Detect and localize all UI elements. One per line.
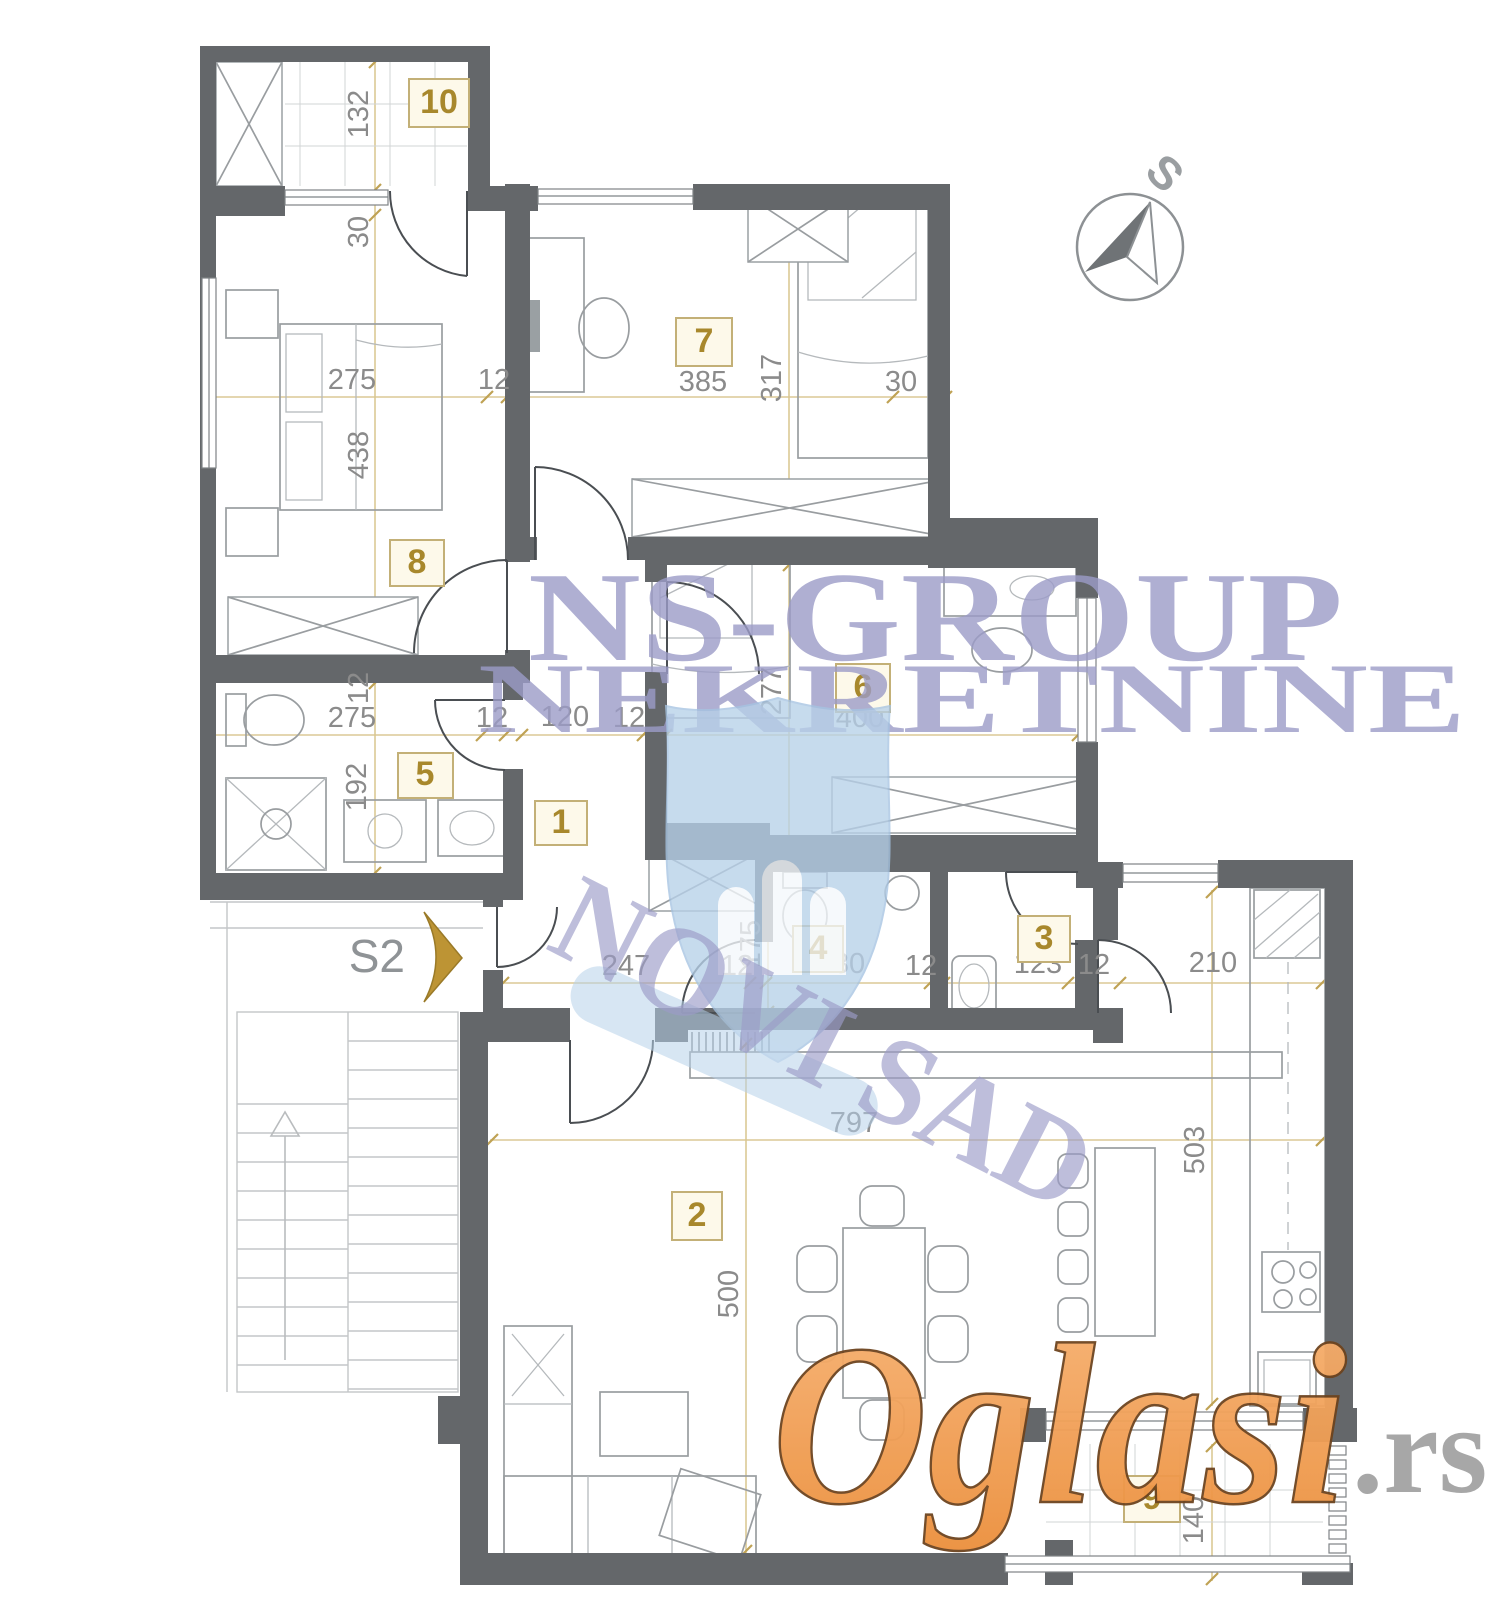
shaft-box	[216, 62, 282, 186]
wardrobe-room7	[632, 479, 947, 537]
dim-503: 503	[1179, 1126, 1211, 1174]
room-label-5: 5	[398, 753, 453, 798]
brand-oglasi: Oglasi	[772, 1297, 1347, 1552]
dim-12-g: 12	[1078, 949, 1110, 981]
window	[285, 190, 388, 205]
toilet-bowl	[244, 695, 304, 745]
stair-label-s2: S2	[349, 930, 405, 982]
room-label-1: 1	[535, 801, 587, 845]
compass-south-label: S	[1136, 144, 1194, 202]
window	[202, 278, 216, 468]
dim-12-f: 12	[905, 950, 937, 982]
sofa-back	[504, 1326, 572, 1558]
entrance-marker: S2	[349, 912, 462, 1002]
dim-275-bath: 275	[328, 702, 376, 734]
dim-275-room8: 275	[328, 364, 376, 396]
window	[538, 189, 693, 204]
dim-30-top: 30	[343, 216, 375, 248]
dim-30-room7: 30	[885, 366, 917, 398]
dim-438: 438	[343, 431, 375, 479]
dim-192: 192	[341, 763, 373, 811]
round-sink	[885, 876, 919, 910]
room-number-8: 8	[408, 543, 427, 581]
dim-12-a: 12	[478, 364, 510, 396]
compass-rose: S	[1077, 144, 1194, 300]
room-number-5: 5	[416, 755, 435, 793]
room-label-8: 8	[390, 540, 444, 586]
dim-500: 500	[713, 1270, 745, 1318]
desk-chair	[579, 298, 629, 358]
dim-317: 317	[756, 354, 788, 402]
dim-385: 385	[679, 366, 727, 398]
furniture-room8-bedroom	[226, 290, 442, 556]
sink	[438, 800, 506, 856]
nightstand	[226, 508, 278, 556]
dim-12-b: 12	[343, 672, 375, 704]
room-label-7: 7	[676, 318, 732, 366]
sofa-seat	[504, 1476, 756, 1558]
room-label-3: 3	[1018, 916, 1070, 962]
dim-132: 132	[343, 90, 375, 138]
pillow	[286, 422, 322, 500]
window	[1005, 1556, 1350, 1572]
double-bed	[280, 324, 442, 510]
room-number-3: 3	[1035, 919, 1054, 957]
window	[1123, 864, 1218, 882]
door-living	[570, 1040, 653, 1123]
nightstand	[226, 290, 278, 338]
watermark-agency: NS-GROUP NEKRETNINE NOVI SAD	[478, 546, 1466, 1239]
floor-plan-page: { "watermark": { "line1": "NS-GROUP", "l…	[0, 0, 1506, 1600]
door-balcony10	[390, 191, 467, 276]
room-label-2: 2	[672, 1192, 722, 1240]
room-label-10: 10	[409, 79, 469, 127]
wardrobe-room8	[228, 597, 418, 655]
entrance-arrow-icon	[424, 912, 462, 1002]
coffee-table	[600, 1392, 688, 1456]
watermark-nekretnine: NEKRETNINE	[478, 643, 1466, 754]
dining-chair	[928, 1246, 968, 1292]
toilet-tank	[226, 694, 246, 746]
room-number-10: 10	[420, 83, 458, 121]
dim-210: 210	[1189, 947, 1237, 979]
pillow	[286, 334, 322, 412]
bar-stool	[1058, 1250, 1088, 1284]
dining-chair	[797, 1246, 837, 1292]
dining-chair	[860, 1186, 904, 1226]
room-number-1: 1	[552, 803, 571, 841]
watermark-oglasi: Oglasi .rs	[772, 1297, 1487, 1552]
room-number-7: 7	[695, 322, 714, 360]
landing-steps	[210, 902, 483, 928]
brand-tld: .rs	[1352, 1382, 1487, 1520]
floor-plan-canvas: 132 30 275 12 385 317 30 438 12 275 192 …	[0, 0, 1506, 1600]
room-number-2: 2	[688, 1196, 707, 1234]
stair-up-arrow	[271, 1112, 299, 1360]
